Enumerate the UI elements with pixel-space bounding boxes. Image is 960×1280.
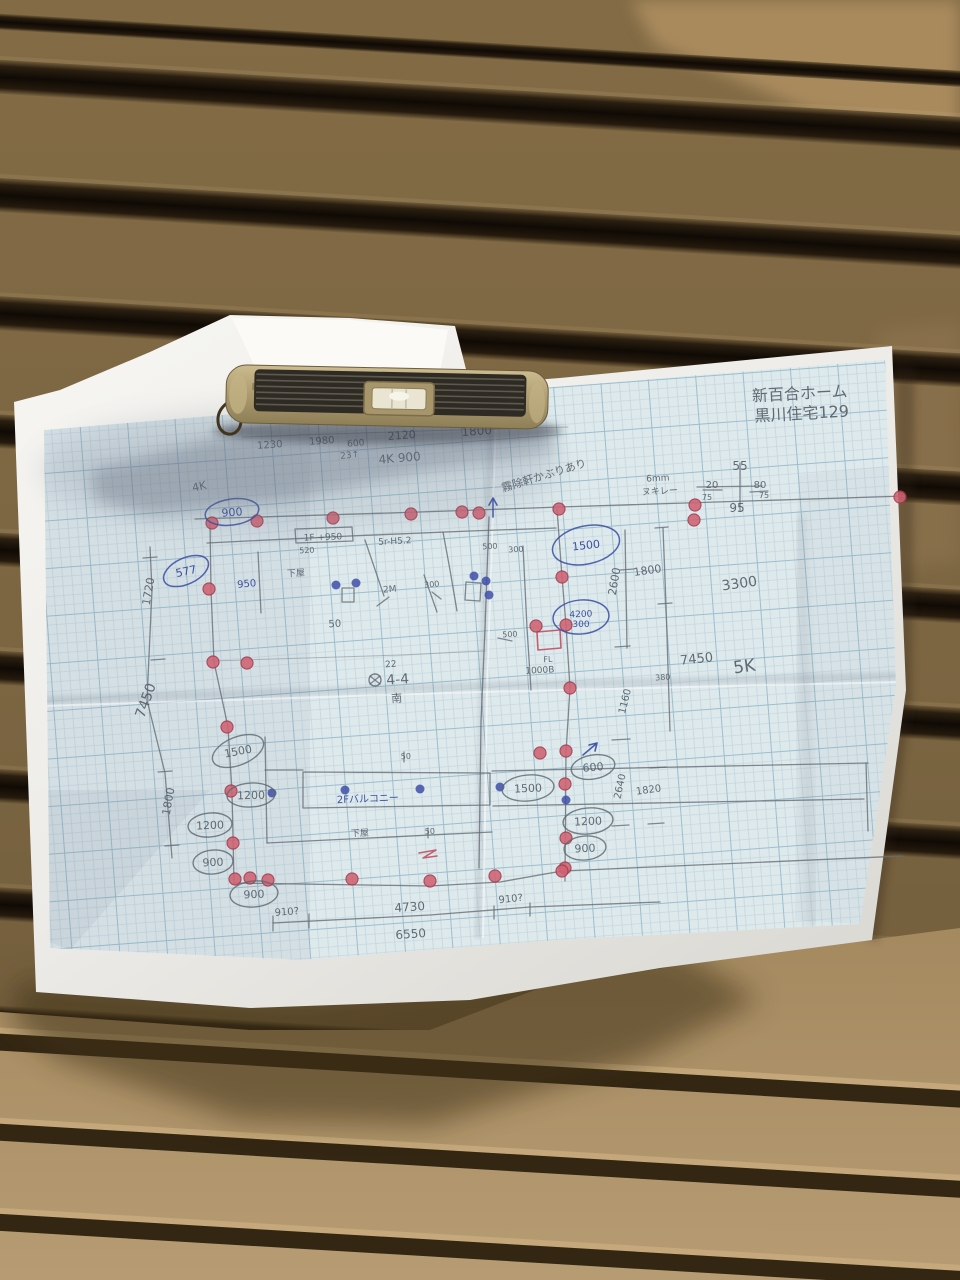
pencil-annotation: 75 <box>759 491 769 500</box>
pencil-annotation: 5r-H5.2 <box>378 536 412 548</box>
pencil-annotation: 南 <box>391 692 403 706</box>
pencil-annotation: 500 <box>502 630 518 640</box>
pencil-annotation: 5K <box>732 655 757 678</box>
circled-measurement-value: 600 <box>582 760 604 775</box>
pencil-annotation: 300 <box>424 579 440 589</box>
circled-measurement-value: 900 <box>202 856 224 870</box>
blue-marker-dot <box>485 591 494 600</box>
blue-marker-dot <box>352 579 361 588</box>
red-marker-dot <box>689 499 701 511</box>
pencil-annotation: 95 <box>729 501 744 515</box>
blue-marker-dot <box>332 581 341 590</box>
blue-pen-annotation: 2Fバルコニー <box>337 792 399 806</box>
circled-measurement-value: 300 <box>572 620 589 630</box>
red-marker-dot <box>229 873 241 885</box>
red-marker-dot <box>560 619 572 631</box>
blue-marker-dot <box>482 577 491 586</box>
blue-marker-dot <box>416 785 425 794</box>
pencil-annotation: 300 <box>508 545 524 555</box>
blue-marker-dot <box>562 796 571 805</box>
pencil-annotation: 50 <box>401 752 412 762</box>
red-marker-dot <box>559 778 571 790</box>
red-marker-dot <box>241 657 253 669</box>
red-marker-dot <box>553 503 565 515</box>
pencil-annotation: 50 <box>328 619 341 631</box>
pencil-annotation: 55 <box>732 459 747 473</box>
pencil-annotation: 6550 <box>395 926 426 942</box>
pencil-annotation: 80 <box>754 480 767 491</box>
red-marker-dot <box>346 873 358 885</box>
circled-measurement-value: 1200 <box>237 789 265 803</box>
red-marker-dot <box>221 721 233 733</box>
circled-measurement-value: 1500 <box>514 781 543 795</box>
circled-measurement-value: 900 <box>574 842 596 856</box>
pencil-annotation: FL <box>543 655 553 664</box>
red-marker-dot <box>207 656 219 668</box>
pencil-annotation: 1F +950 <box>304 532 343 543</box>
pencil-annotation: 50 <box>425 827 436 837</box>
pencil-annotation: 75 <box>702 493 712 502</box>
pencil-annotation: 1000B <box>525 665 555 677</box>
red-marker-dot <box>489 870 501 882</box>
red-marker-dot <box>560 745 572 757</box>
pencil-annotation: 910? <box>274 906 299 919</box>
red-marker-dot <box>556 865 568 877</box>
red-marker-dot <box>556 571 568 583</box>
red-marker-dot <box>534 747 546 759</box>
red-marker-dot <box>894 491 906 503</box>
pencil-annotation: 380 <box>655 672 671 682</box>
blue-marker-dot <box>341 786 350 795</box>
circled-measurement-value: 1200 <box>196 818 225 832</box>
red-marker-dot <box>530 620 542 632</box>
pencil-annotation: 2M <box>383 584 397 595</box>
red-marker-dot <box>424 875 436 887</box>
pencil-annotation: 6mm <box>646 473 670 484</box>
pencil-annotation: 22 <box>385 660 397 671</box>
pencil-annotation: 下屋 <box>287 568 306 580</box>
pencil-annotation: 520 <box>299 546 315 556</box>
scene-svg: 新百合ホーム 黒川住宅129 9005771500420030015006001… <box>0 0 960 1280</box>
pencil-annotation: 20 <box>706 480 719 491</box>
pencil-annotation: 下屋 <box>351 828 370 840</box>
circled-measurement-value: 4200 <box>569 609 593 620</box>
photo-scene: 新百合ホーム 黒川住宅129 9005771500420030015006001… <box>0 0 960 1280</box>
red-marker-dot <box>560 832 572 844</box>
red-marker-dot <box>227 837 239 849</box>
red-marker-dot <box>203 583 215 595</box>
pencil-annotation: ヌキレー <box>642 486 678 498</box>
blue-pen-annotation: 950 <box>237 578 257 591</box>
blue-marker-dot <box>470 572 479 581</box>
pencil-annotation: 500 <box>482 542 498 552</box>
circled-measurement-value: 1200 <box>574 814 603 828</box>
pencil-annotation: 4730 <box>394 899 425 915</box>
red-marker-dot <box>564 682 576 694</box>
circled-measurement-value: 900 <box>243 888 265 902</box>
red-marker-dot <box>688 514 700 526</box>
pencil-annotation: 4-4 <box>386 671 410 689</box>
